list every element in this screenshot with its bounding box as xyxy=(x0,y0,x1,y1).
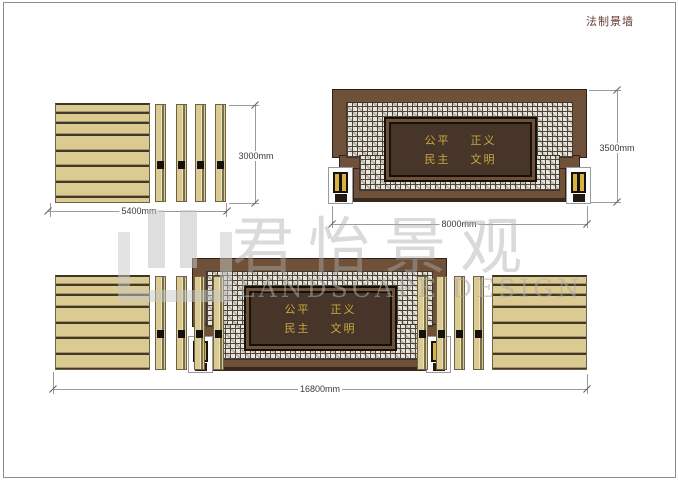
timber-post xyxy=(213,276,224,370)
post-groove xyxy=(182,105,185,201)
extension-line xyxy=(587,374,588,394)
timber-post xyxy=(195,104,206,202)
timber-post xyxy=(215,104,226,202)
slat-line xyxy=(493,305,586,308)
panel-text-row: 公平 正义 xyxy=(251,301,390,317)
lantern-base xyxy=(335,194,347,202)
post-groove xyxy=(460,277,463,369)
post-light-fixture-icon xyxy=(197,161,204,169)
slat-line xyxy=(493,321,586,324)
panel-word: 民主 xyxy=(425,151,451,167)
post-groove xyxy=(221,105,224,201)
slat-line xyxy=(493,336,586,339)
lantern-lamp xyxy=(571,172,586,193)
post-groove xyxy=(201,105,204,201)
post-light-fixture-icon xyxy=(178,161,185,169)
timber-post xyxy=(194,276,205,370)
post-light-fixture-icon xyxy=(419,330,426,338)
lantern-glow-bar xyxy=(580,174,584,191)
panel-word: 文明 xyxy=(331,320,357,336)
slat-line xyxy=(493,283,586,286)
panel-word: 正义 xyxy=(331,301,357,317)
slat-line xyxy=(56,352,149,355)
panel-word: 公平 xyxy=(285,301,311,317)
message-panel: 公平 正义 民主 文明 xyxy=(384,117,537,182)
post-groove xyxy=(182,277,185,369)
slat-line xyxy=(56,180,149,183)
timber-post xyxy=(155,276,166,370)
panel-text-row: 公平 正义 xyxy=(391,132,530,148)
timber-slat-panel xyxy=(55,103,150,203)
post-light-fixture-icon xyxy=(196,330,203,338)
timber-slat-panel xyxy=(492,275,587,370)
drawing-frame xyxy=(3,2,676,478)
slat-line xyxy=(56,293,149,296)
slat-line xyxy=(493,367,586,370)
post-groove xyxy=(479,277,482,369)
panel-text-row: 民主 文明 xyxy=(251,320,390,336)
feature-wall-elevation: 公平 正义 民主 文明 xyxy=(332,89,587,205)
slat-line xyxy=(56,336,149,339)
slat-line xyxy=(56,367,149,370)
lantern-base xyxy=(573,194,585,202)
slat-line xyxy=(56,111,149,114)
post-light-fixture-icon xyxy=(157,330,164,338)
message-panel: 公平 正义 民主 文明 xyxy=(244,286,397,351)
post-light-fixture-icon xyxy=(475,330,482,338)
slat-line xyxy=(56,121,149,124)
lantern-glow-bar xyxy=(573,174,577,191)
lantern-lamp xyxy=(333,172,348,193)
timber-post xyxy=(473,276,484,370)
extension-line xyxy=(50,203,51,217)
slat-line xyxy=(56,133,149,136)
feature-wall-combined: 公平 正义 民主 文明 xyxy=(192,258,447,374)
dimension-label-wall-height: 3500mm xyxy=(597,143,636,153)
slat-line xyxy=(56,164,149,167)
timber-post xyxy=(176,276,187,370)
post-light-fixture-icon xyxy=(217,161,224,169)
slat-line xyxy=(56,321,149,324)
post-light-fixture-icon xyxy=(157,161,164,169)
drawing-canvas: 法制景墙 5400mm 3000mm 公平 xyxy=(0,0,678,480)
post-groove xyxy=(200,277,203,369)
post-groove xyxy=(161,277,164,369)
timber-post xyxy=(417,276,428,370)
panel-word: 公平 xyxy=(425,132,451,148)
post-groove xyxy=(442,277,445,369)
post-light-fixture-icon xyxy=(178,330,185,338)
lantern-glow-bar xyxy=(335,174,339,191)
post-light-fixture-icon xyxy=(215,330,222,338)
slat-line xyxy=(56,195,149,198)
wall-lantern-icon xyxy=(566,167,591,204)
message-panel-face: 公平 正义 民主 文明 xyxy=(249,291,392,346)
slat-line xyxy=(56,305,149,308)
post-light-fixture-icon xyxy=(438,330,445,338)
wall-lantern-icon xyxy=(328,167,353,204)
timber-post xyxy=(436,276,447,370)
message-panel-face: 公平 正义 民主 文明 xyxy=(389,122,532,177)
slat-line xyxy=(493,293,586,296)
panel-word: 民主 xyxy=(285,320,311,336)
slat-line xyxy=(56,149,149,152)
dimension-label-wall-width: 8000mm xyxy=(439,219,478,229)
timber-post xyxy=(454,276,465,370)
extension-line xyxy=(587,206,588,228)
dimension-label-left-width: 5400mm xyxy=(119,206,158,216)
post-light-fixture-icon xyxy=(456,330,463,338)
timber-post xyxy=(155,104,166,202)
timber-slat-panel xyxy=(55,275,150,370)
lantern-glow-bar xyxy=(342,174,346,191)
panel-text-row: 民主 文明 xyxy=(391,151,530,167)
panel-word: 文明 xyxy=(471,151,497,167)
extension-line xyxy=(53,372,54,394)
post-groove xyxy=(219,277,222,369)
timber-post xyxy=(176,104,187,202)
drawing-title: 法制景墙 xyxy=(586,13,634,29)
dimension-label-total-width: 16800mm xyxy=(298,384,342,394)
dimension-label-left-height: 3000mm xyxy=(236,151,275,161)
post-groove xyxy=(423,277,426,369)
post-groove xyxy=(161,105,164,201)
panel-word: 正义 xyxy=(471,132,497,148)
slat-line xyxy=(56,283,149,286)
slat-line xyxy=(493,352,586,355)
